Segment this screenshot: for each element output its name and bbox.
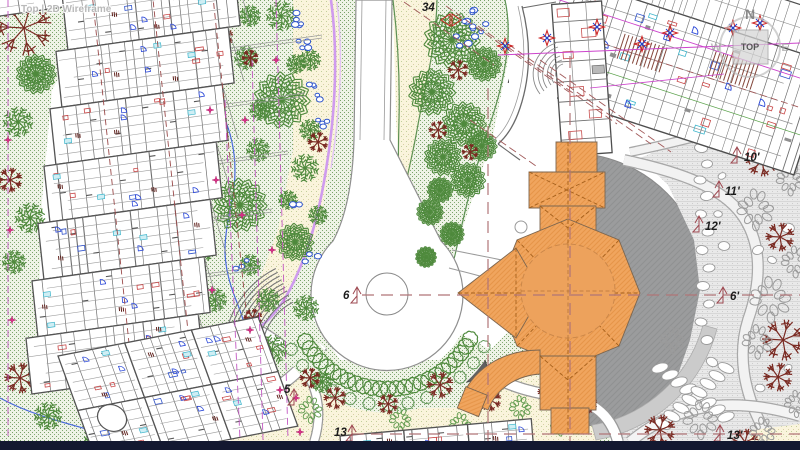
svg-text:13': 13' <box>727 430 744 442</box>
svg-text:6': 6' <box>730 291 740 303</box>
svg-text:Top | 2D Wireframe: Top | 2D Wireframe <box>21 4 112 15</box>
svg-text:E: E <box>781 42 788 54</box>
svg-text:34: 34 <box>422 2 435 14</box>
svg-text:TOP: TOP <box>741 42 759 52</box>
svg-text:N: N <box>745 6 755 22</box>
svg-text:11': 11' <box>725 186 741 198</box>
svg-text:W: W <box>711 42 722 54</box>
svg-text:5: 5 <box>284 384 291 396</box>
svg-text:6: 6 <box>343 290 350 302</box>
svg-text:12': 12' <box>705 221 722 233</box>
svg-text:13: 13 <box>334 427 347 439</box>
svg-text:10': 10' <box>744 152 761 164</box>
